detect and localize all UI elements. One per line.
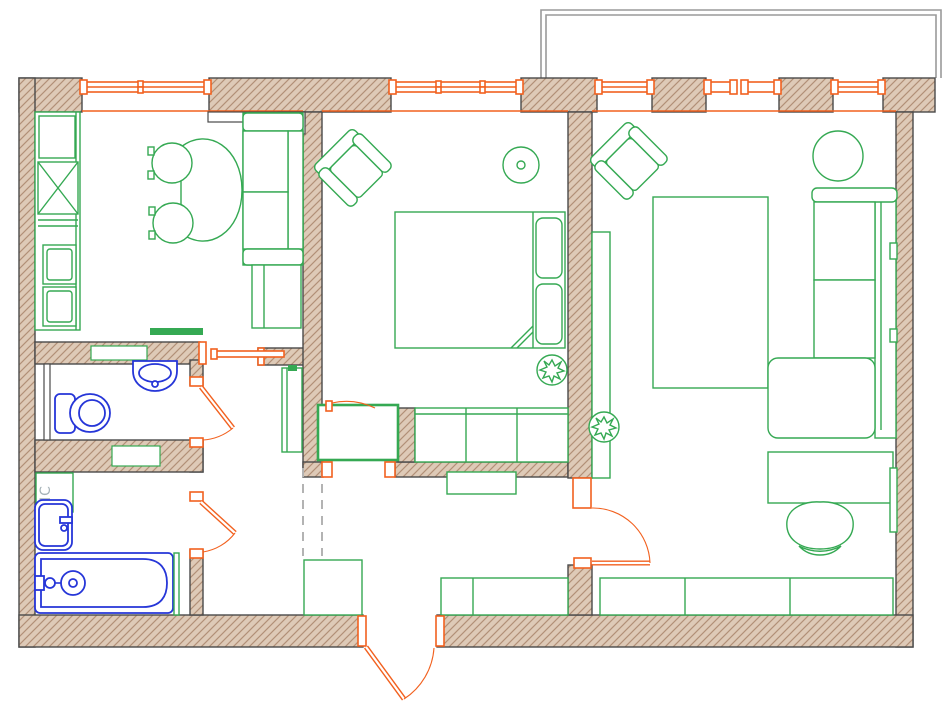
wall-bedroom-bottom-left: [303, 462, 323, 477]
wall-bedroom-stub: [398, 408, 415, 462]
kitchen-sofa-icon: [243, 113, 303, 265]
wc: [55, 361, 177, 433]
living-window-1-icon: [595, 80, 654, 94]
wall-partition-bedroom-living: [568, 112, 592, 478]
living-bed-icon: [653, 197, 768, 388]
kitchen-bench-icon: [150, 328, 203, 335]
kitchen-sink-icon: [38, 162, 78, 214]
kitchen-window-icon: [80, 80, 211, 94]
living-low-cabinets: [600, 578, 893, 615]
hall-console: [447, 472, 516, 494]
wall-top-5: [779, 78, 833, 112]
living-armchair-icon: [587, 119, 669, 201]
wall-top-4: [652, 78, 706, 112]
pillow-icon: [536, 284, 562, 344]
wall-right: [896, 112, 913, 647]
bedroom-cabinet-icon: [318, 405, 398, 460]
living-window-2-icon: [704, 80, 781, 94]
wc-sink-icon: [133, 361, 177, 391]
bathroom: МС: [35, 473, 179, 615]
living-corner-sofa-icon: [768, 188, 897, 438]
windows: [80, 80, 885, 94]
living-window-3-icon: [831, 80, 885, 94]
hall-tall-cabinet: [282, 365, 302, 452]
bedroom: [311, 126, 568, 462]
living-desk-icon: [768, 452, 893, 503]
wall-top-3: [521, 78, 597, 112]
desk-chair-icon: [787, 502, 853, 555]
bedroom-wardrobe-icon: [415, 408, 568, 462]
bathroom-sink-icon: [35, 500, 72, 550]
bedroom-armchair-icon: [311, 126, 393, 208]
wall-bottom-right: [437, 615, 913, 647]
fridge-icon: [39, 116, 75, 158]
bedroom-plant-icon: [537, 355, 567, 385]
wall-niche-bathroom: [112, 446, 160, 466]
wall-bath-right-bottom: [190, 550, 203, 615]
dining-chair-2-icon: [149, 203, 193, 243]
bathroom-door: [190, 492, 235, 558]
pillow-icon: [536, 218, 562, 278]
kitchen-counter: [35, 112, 80, 330]
balcony-outline: [541, 10, 941, 80]
bedroom-side-table-icon: [503, 147, 539, 183]
kitchen: [35, 112, 305, 335]
kitchen-shelf-unit: [252, 265, 301, 328]
living-room-door: [573, 478, 650, 568]
wall-top-6: [883, 78, 935, 112]
living-room: [587, 119, 897, 615]
wall-left: [19, 78, 35, 647]
toilet-icon: [55, 394, 110, 433]
duct-behind-toilet: [44, 364, 50, 440]
wall-niche-kitchen: [91, 346, 147, 360]
bath-screen: [174, 553, 179, 615]
wc-door: [190, 377, 233, 447]
bathtub-icon: [35, 553, 173, 613]
hall-low-cabinets: [441, 578, 568, 615]
floor-plan-page: МС: [0, 0, 950, 716]
living-round-table-icon: [813, 131, 863, 181]
dining-chair-1-icon: [148, 143, 192, 183]
hall-shoe-cabinet: [304, 560, 362, 615]
bedroom-bed-icon: [395, 212, 565, 348]
hall-dashed-closet: [303, 468, 322, 556]
hallway: [282, 365, 568, 615]
entrance-door: [358, 616, 444, 699]
floor-plan: МС: [0, 0, 950, 716]
bedroom-window-icon: [389, 80, 523, 94]
wall-bottom-left: [19, 615, 363, 647]
wall-below-living-door: [568, 565, 592, 615]
wall-top-2: [209, 78, 391, 112]
living-plant-icon: [589, 412, 619, 442]
